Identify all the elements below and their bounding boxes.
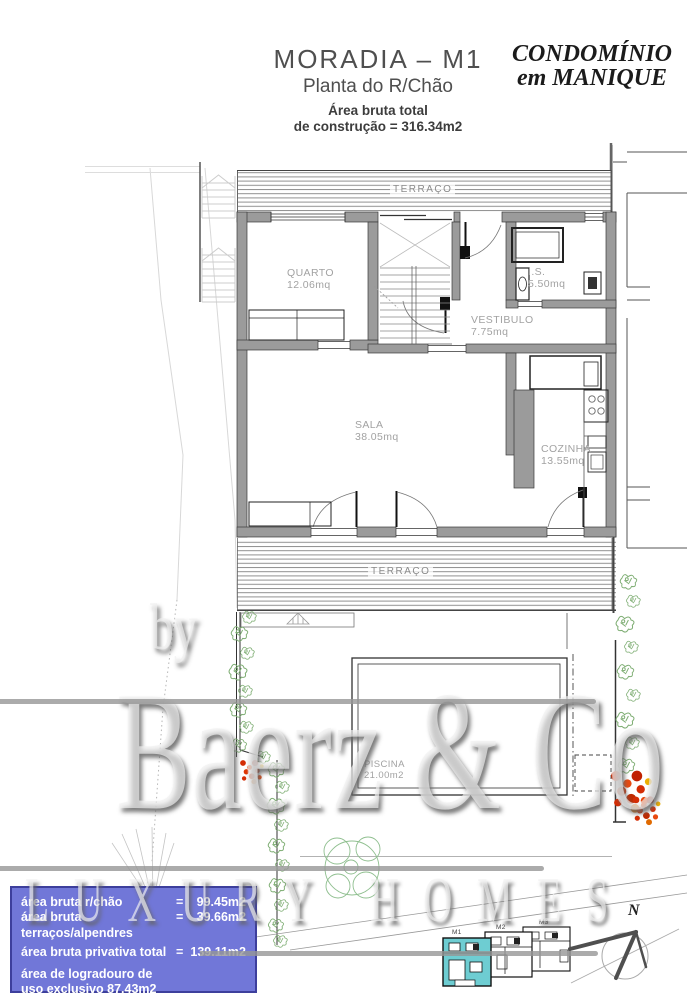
stairs	[374, 223, 452, 344]
room-label-sala: SALA 38.05mq	[355, 420, 399, 444]
neighbour-outline	[611, 143, 687, 548]
flowers-red	[240, 760, 660, 825]
key-plan-label-m2: M2	[496, 924, 506, 931]
terrace-top-label: TERRAÇO	[390, 184, 455, 195]
summary-row: área bruta r/chão =99.45m2	[21, 895, 246, 910]
site-boundary-lines	[85, 167, 237, 863]
room-label-quarto: QUARTO 12.06mq	[287, 268, 334, 292]
north-label: N	[628, 902, 640, 920]
room-label-cozinha: COZINHA 13.55mq	[541, 444, 591, 468]
floor-plan-drawing	[0, 0, 687, 1000]
key-plan	[443, 927, 570, 986]
exterior-stairs	[200, 162, 235, 302]
room-label-is: I.S. 5.50mq	[528, 267, 565, 291]
summary-row: área bruta privativa total =139.11m2	[21, 945, 246, 960]
house-walls	[237, 212, 616, 537]
garden	[235, 612, 687, 950]
summary-row: área bruta terraços/alpendres =39.66m2	[21, 910, 246, 941]
hedge-right	[616, 575, 640, 773]
north-compass-icon	[570, 929, 679, 983]
room-label-vestibulo: VESTIBULO 7.75mq	[471, 315, 534, 339]
area-summary-box: área bruta r/chão =99.45m2 área bruta te…	[10, 886, 257, 993]
key-plan-label-m3: M3	[539, 919, 549, 926]
tree-icon	[324, 837, 380, 898]
room-label-piscina: PISCINA 21.00m2	[364, 760, 405, 781]
summary-row: área de logradouro de	[21, 967, 246, 982]
floor-plan-page: MORADIA – M1 Planta do R/Chão Área bruta…	[0, 0, 687, 1000]
windows-and-thresholds	[271, 212, 603, 536]
terrace-bottom-label: TERRAÇO	[368, 566, 433, 577]
umbrella-icon	[287, 613, 309, 624]
summary-row: uso exclusivo 87.43m2	[21, 982, 246, 997]
key-plan-label-m1: M1	[452, 929, 462, 936]
terrace-top	[237, 145, 612, 212]
